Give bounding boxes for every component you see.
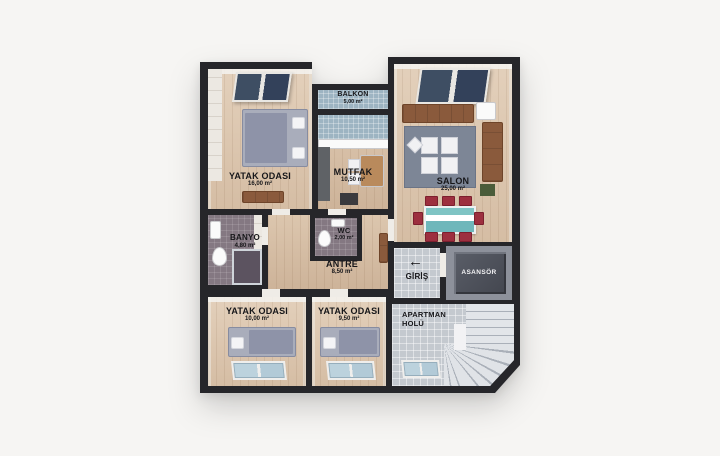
bed-icon xyxy=(242,109,308,167)
room-name: YATAK ODASI xyxy=(208,171,312,181)
door-opening xyxy=(328,209,346,215)
room-name: MUTFAK xyxy=(318,167,388,177)
dining-chair-icon xyxy=(474,212,484,225)
room-label: MUTFAK 10,50 m² xyxy=(318,167,388,184)
room-label: GİRİŞ xyxy=(394,272,440,282)
blanket-icon xyxy=(245,113,287,162)
room-label: APARTMAN HOLÜ xyxy=(402,310,462,328)
room-kitchen: MUTFAK 10,50 m² xyxy=(318,115,388,209)
room-area: 4,80 m² xyxy=(218,243,262,250)
sofa-icon xyxy=(482,122,503,182)
room-wc: WC 2,00 m² xyxy=(310,213,362,261)
room-label: WC 2,00 m² xyxy=(323,227,362,242)
room-label: ANTRE 8,50 m² xyxy=(282,259,388,276)
pouf-icon xyxy=(441,157,458,174)
room-area: 8,50 m² xyxy=(282,269,388,276)
sofa-icon xyxy=(402,104,474,123)
dining-chair-icon xyxy=(459,196,472,206)
room-area: 10,50 m² xyxy=(318,177,388,184)
room-bedroom-bottom-mid: YATAK ODASI 9,50 m² xyxy=(312,297,386,386)
dining-chair-icon xyxy=(425,232,438,242)
room-area: 25,00 m² xyxy=(394,186,512,193)
room-bedroom-bottom-left: YATAK ODASI 10,00 m² xyxy=(208,297,306,386)
pillow-icon xyxy=(292,147,305,159)
pouf-icon xyxy=(441,137,458,154)
pillow-icon xyxy=(323,337,336,349)
floor-window-icon xyxy=(231,361,287,380)
blanket-icon xyxy=(249,330,293,355)
room-name: BALKON xyxy=(318,91,388,99)
room-name: BANYO xyxy=(218,233,262,243)
door-opening xyxy=(262,289,280,297)
room-name: SALON xyxy=(394,176,512,186)
dining-chair-icon xyxy=(459,232,472,242)
room-name: YATAK ODASI xyxy=(208,306,306,316)
room-stair-hall: APARTMAN HOLÜ xyxy=(392,304,514,386)
skylight-window-icon xyxy=(415,68,490,104)
shower-icon xyxy=(232,249,262,285)
room-entrance: ← GİRİŞ xyxy=(394,248,440,298)
room-label: BALKON 5,00 m² xyxy=(318,91,388,105)
skylight-window-icon xyxy=(232,72,292,102)
room-label: YATAK ODASI 9,50 m² xyxy=(312,306,386,323)
door-opening xyxy=(330,289,348,297)
stairs-icon xyxy=(466,304,514,346)
room-bathroom: BANYO 4,80 m² xyxy=(208,215,262,285)
dining-chair-icon xyxy=(442,232,455,242)
room-bedroom-top-left: YATAK ODASI 16,00 m² xyxy=(208,69,312,209)
room-name: APARTMAN xyxy=(402,310,462,319)
room-name: ASANSÖR xyxy=(446,268,512,278)
floor-window-icon xyxy=(401,360,441,378)
floor-window-icon xyxy=(326,361,376,380)
pouf-icon xyxy=(421,157,438,174)
stove-icon xyxy=(340,193,358,205)
wardrobe-icon xyxy=(208,69,222,181)
dining-chair-icon xyxy=(442,196,455,206)
winding-stairs-icon xyxy=(444,344,514,386)
entrance-arrow-icon: ← xyxy=(408,256,423,268)
room-balcony: BALKON 5,00 m² xyxy=(318,90,388,109)
room-label: BANYO 4,80 m² xyxy=(218,233,262,250)
pouf-icon xyxy=(421,137,438,154)
pillow-icon xyxy=(231,337,244,349)
room-label: ASANSÖR xyxy=(446,268,512,278)
dining-chair-icon xyxy=(413,212,423,225)
room-area: 10,00 m² xyxy=(208,316,306,323)
side-table-icon xyxy=(476,102,496,120)
kitchen-backsplash-icon xyxy=(318,115,388,139)
room-label: SALON 25,00 m² xyxy=(394,176,512,193)
room-label: YATAK ODASI 16,00 m² xyxy=(208,171,312,188)
bench-icon xyxy=(242,191,284,203)
dining-chair-icon xyxy=(425,196,438,206)
dining-table-icon xyxy=(424,206,476,234)
pillow-icon xyxy=(292,117,305,129)
bed-icon xyxy=(228,327,296,357)
room-elevator: ASANSÖR xyxy=(446,246,512,300)
floor-plan-shadow-wrap: YATAK ODASI 16,00 m² BALKON 5,00 m² MUTF… xyxy=(0,0,720,456)
room-living-room: SALON 25,00 m² xyxy=(394,64,512,242)
door-opening xyxy=(272,209,290,215)
room-name: HOLÜ xyxy=(402,319,462,328)
room-label: YATAK ODASI 10,00 m² xyxy=(208,306,306,323)
room-area: 9,50 m² xyxy=(312,316,386,323)
bed-icon xyxy=(320,327,380,357)
room-name: ANTRE xyxy=(282,259,388,269)
floor-plan: YATAK ODASI 16,00 m² BALKON 5,00 m² MUTF… xyxy=(200,57,520,393)
door-opening xyxy=(262,227,268,245)
blanket-icon xyxy=(339,330,377,355)
room-area: 2,00 m² xyxy=(323,235,362,242)
room-name: GİRİŞ xyxy=(394,272,440,282)
room-area: 16,00 m² xyxy=(208,181,312,188)
room-name: WC xyxy=(323,227,362,235)
room-area: 5,00 m² xyxy=(318,99,388,105)
room-name: YATAK ODASI xyxy=(312,306,386,316)
floor-plan-image: YATAK ODASI 16,00 m² BALKON 5,00 m² MUTF… xyxy=(0,0,720,456)
door-opening xyxy=(388,219,394,241)
